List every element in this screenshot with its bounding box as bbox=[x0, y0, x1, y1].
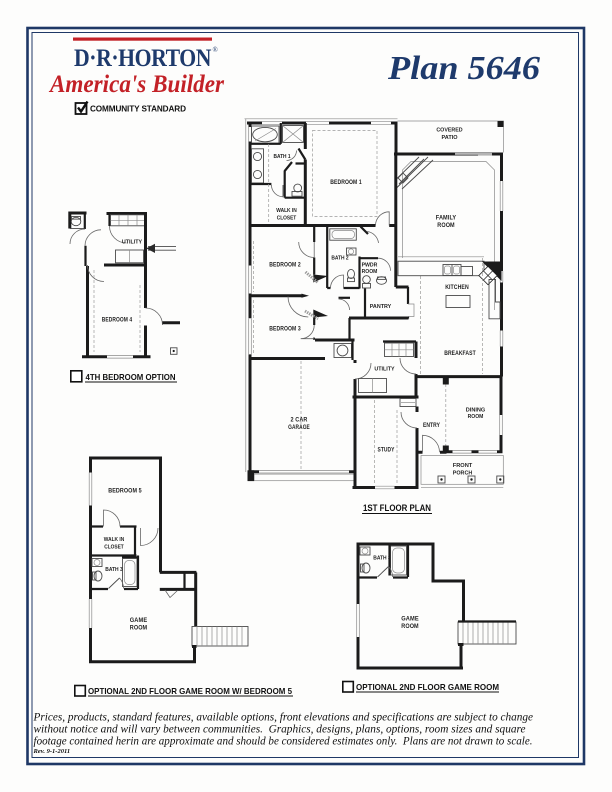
svg-text:DINING: DINING bbox=[466, 408, 486, 414]
svg-text:Prices, products, standard fea: Prices, products, standard features, ava… bbox=[33, 712, 533, 724]
svg-text:BATH 2: BATH 2 bbox=[331, 255, 348, 261]
svg-text:BATH 3: BATH 3 bbox=[373, 556, 391, 562]
svg-text:D·R·HORTON: D·R·HORTON bbox=[74, 45, 211, 72]
svg-text:America's Builder: America's Builder bbox=[48, 71, 224, 98]
svg-text:BEDROOM 2: BEDROOM 2 bbox=[269, 263, 301, 269]
svg-text:STUDY: STUDY bbox=[378, 448, 395, 454]
svg-text:BATH 1: BATH 1 bbox=[274, 154, 291, 160]
svg-text:WALK IN: WALK IN bbox=[276, 208, 297, 214]
svg-text:OPTIONAL 2ND FLOOR GAME ROOM: OPTIONAL 2ND FLOOR GAME ROOM bbox=[356, 683, 499, 692]
svg-text:BATH 3: BATH 3 bbox=[105, 567, 123, 573]
svg-text:FAMILY: FAMILY bbox=[436, 215, 457, 221]
svg-text:4TH BEDROOM OPTION: 4TH BEDROOM OPTION bbox=[86, 373, 176, 382]
svg-text:CLOSET: CLOSET bbox=[104, 545, 124, 551]
svg-text:PWDR: PWDR bbox=[362, 263, 378, 269]
svg-text:UTILITY: UTILITY bbox=[374, 367, 395, 373]
svg-text:®: ® bbox=[213, 46, 219, 54]
svg-text:GARAGE: GARAGE bbox=[288, 425, 310, 431]
svg-text:ROOM: ROOM bbox=[130, 626, 148, 632]
svg-text:1ST FLOOR PLAN: 1ST FLOOR PLAN bbox=[363, 503, 431, 514]
svg-text:BEDROOM 3: BEDROOM 3 bbox=[269, 327, 301, 333]
svg-text:COVERED: COVERED bbox=[436, 128, 462, 134]
svg-text:ENTRY: ENTRY bbox=[423, 423, 440, 429]
svg-text:PANTRY: PANTRY bbox=[370, 304, 392, 310]
svg-text:ROOM: ROOM bbox=[437, 223, 455, 229]
svg-text:FRONT: FRONT bbox=[453, 463, 473, 469]
svg-text:PATIO: PATIO bbox=[442, 135, 458, 141]
svg-text:UTILITY: UTILITY bbox=[122, 240, 143, 246]
svg-text:ROOM: ROOM bbox=[362, 269, 378, 275]
svg-text:2 CAR: 2 CAR bbox=[291, 418, 309, 424]
svg-text:WALK IN: WALK IN bbox=[104, 537, 125, 543]
svg-text:Plan 5646: Plan 5646 bbox=[387, 50, 540, 87]
svg-text:BEDROOM 4: BEDROOM 4 bbox=[102, 318, 133, 324]
svg-text:without notice and will vary b: without notice and will vary between com… bbox=[34, 724, 526, 736]
svg-text:PORCH: PORCH bbox=[453, 471, 473, 477]
svg-text:footage contained herin are ap: footage contained herin are approximate … bbox=[34, 736, 533, 748]
svg-text:BREAKFAST: BREAKFAST bbox=[444, 351, 476, 357]
svg-text:BEDROOM 5: BEDROOM 5 bbox=[108, 489, 142, 495]
svg-text:Rev. 9-1-2011: Rev. 9-1-2011 bbox=[33, 748, 71, 755]
svg-text:COMMUNITY STANDARD: COMMUNITY STANDARD bbox=[90, 105, 186, 114]
svg-text:GAME: GAME bbox=[130, 618, 148, 624]
svg-text:ROOM: ROOM bbox=[401, 624, 419, 630]
svg-text:KITCHEN: KITCHEN bbox=[445, 285, 469, 291]
svg-text:CLOSET: CLOSET bbox=[277, 216, 297, 222]
svg-text:OPTIONAL 2ND FLOOR GAME ROOM W: OPTIONAL 2ND FLOOR GAME ROOM W/ BEDROOM … bbox=[88, 687, 292, 696]
svg-text:BEDROOM 1: BEDROOM 1 bbox=[330, 180, 362, 186]
svg-text:ROOM: ROOM bbox=[468, 414, 484, 420]
svg-text:GAME: GAME bbox=[401, 617, 419, 623]
